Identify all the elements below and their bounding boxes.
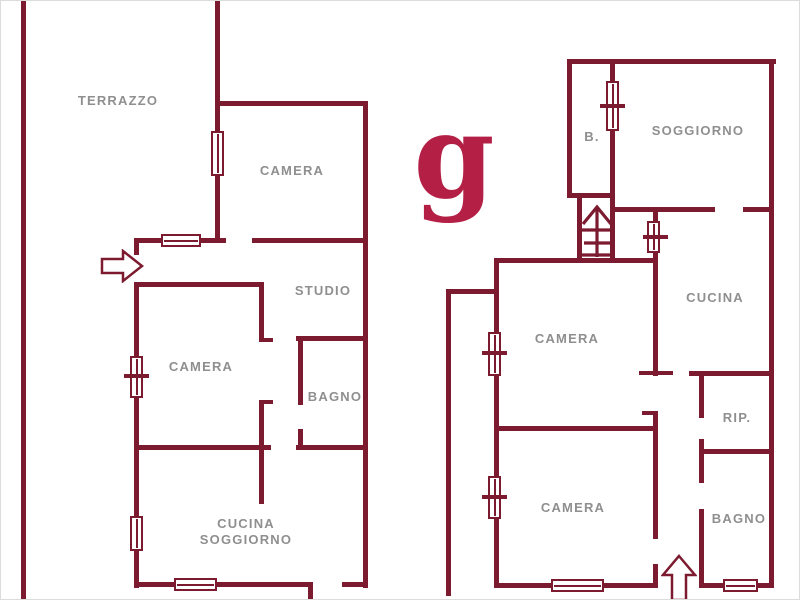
window-symbol — [130, 516, 143, 551]
wall-segment — [296, 336, 363, 341]
room-label-cucina: CUCINA — [686, 290, 744, 306]
wall-tick — [482, 495, 507, 499]
wall-tick — [482, 351, 507, 355]
window-symbol — [551, 579, 604, 592]
wall-segment — [446, 289, 499, 294]
wall-tick — [259, 338, 273, 342]
wall-tick — [124, 374, 149, 378]
wall-segment — [252, 238, 363, 243]
floor-plan-canvas: g TERRAZZOCAMERASTUDIOCAMERABAGNOCUCINA … — [0, 0, 800, 600]
room-label-camera-1: CAMERA — [260, 163, 324, 179]
wall-segment — [308, 582, 313, 600]
wall-segment — [134, 282, 264, 287]
wall-segment — [259, 282, 264, 340]
room-label-studio: STUDIO — [295, 283, 351, 299]
wall-segment — [577, 193, 582, 263]
room-label-rip: RIP. — [723, 410, 751, 426]
agency-logo-g: g — [409, 99, 499, 224]
wall-segment — [769, 59, 774, 588]
room-label-soggiorno: SOGGIORNO — [652, 123, 744, 139]
wall-tick — [642, 411, 655, 415]
wall-tick — [643, 235, 668, 239]
wall-segment — [699, 449, 774, 454]
wall-segment — [134, 582, 313, 587]
wall-segment — [134, 238, 139, 255]
wall-tick — [639, 371, 673, 375]
wall-segment — [567, 59, 776, 64]
wall-segment — [342, 582, 368, 587]
wall-segment — [699, 371, 704, 418]
wall-segment — [298, 336, 303, 405]
room-label-terrazzo: TERRAZZO — [78, 93, 158, 109]
wall-segment — [494, 426, 658, 431]
wall-segment — [296, 445, 363, 450]
wall-segment — [494, 258, 499, 588]
room-label-camera-2: CAMERA — [169, 359, 233, 375]
wall-tick — [259, 400, 273, 404]
wall-segment — [215, 1, 220, 243]
window-symbol — [174, 578, 217, 591]
wall-segment — [259, 400, 264, 504]
wall-segment — [653, 258, 658, 376]
room-label-camera-3: CAMERA — [535, 331, 599, 347]
wall-segment — [699, 439, 704, 483]
wall-tick — [600, 104, 625, 108]
wall-segment — [699, 509, 704, 588]
wall-segment — [134, 445, 271, 450]
room-label-camera-4: CAMERA — [541, 500, 605, 516]
wall-segment — [567, 193, 615, 198]
wall-segment — [743, 207, 774, 212]
wall-segment — [567, 59, 572, 198]
room-label-cucina-soggiorno: CUCINA SOGGIORNO — [200, 516, 292, 548]
wall-segment — [363, 101, 368, 588]
window-symbol — [161, 234, 201, 247]
window-symbol — [211, 131, 224, 176]
wall-segment — [653, 411, 658, 539]
window-symbol — [723, 579, 758, 592]
wall-segment — [494, 258, 658, 263]
room-label-b: B. — [584, 129, 599, 145]
wall-segment — [21, 1, 26, 600]
wall-segment — [446, 289, 451, 596]
wall-segment — [215, 101, 368, 106]
wall-segment — [610, 207, 715, 212]
room-label-bagno-2: BAGNO — [712, 511, 766, 527]
room-label-bagno-1: BAGNO — [308, 389, 362, 405]
entrance-arrow-up-icon — [661, 554, 697, 600]
